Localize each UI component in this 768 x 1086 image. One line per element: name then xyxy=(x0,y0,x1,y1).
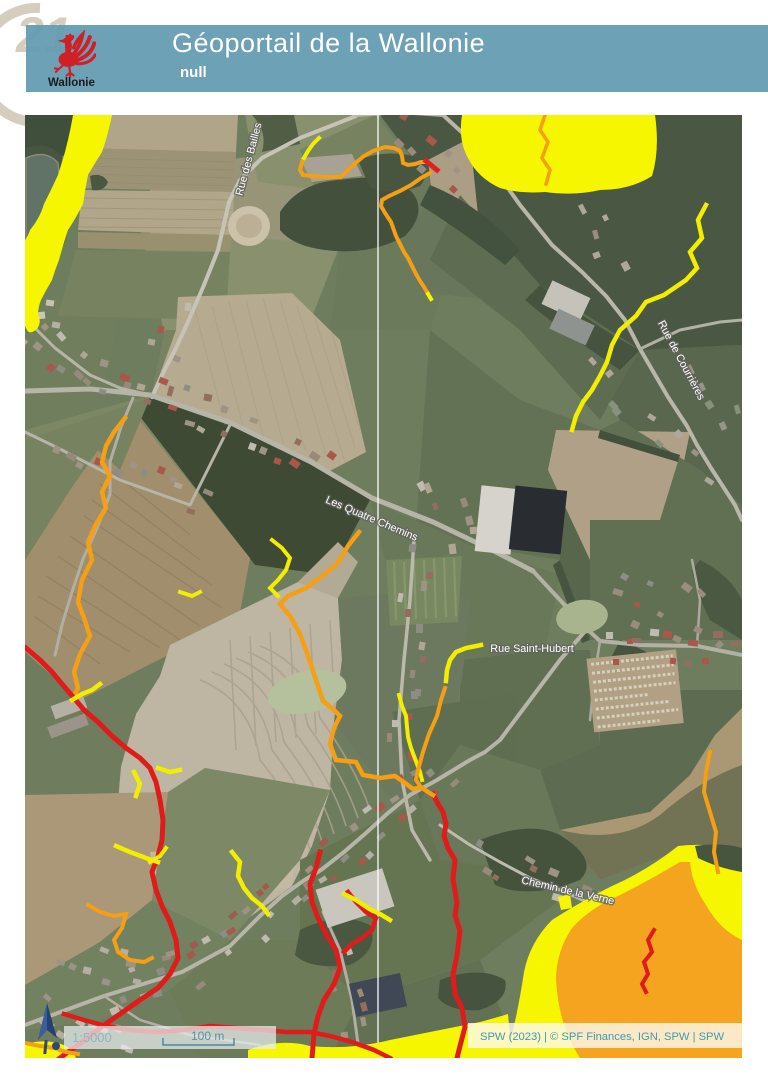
svg-text:SPW (2023) | © SPF Finances, I: SPW (2023) | © SPF Finances, IGN, SPW | … xyxy=(480,1031,725,1043)
svg-text:1:5000: 1:5000 xyxy=(72,1030,112,1045)
svg-text:100 m: 100 m xyxy=(191,1029,224,1043)
svg-text:Rue Saint-Hubert: Rue Saint-Hubert xyxy=(490,643,573,655)
